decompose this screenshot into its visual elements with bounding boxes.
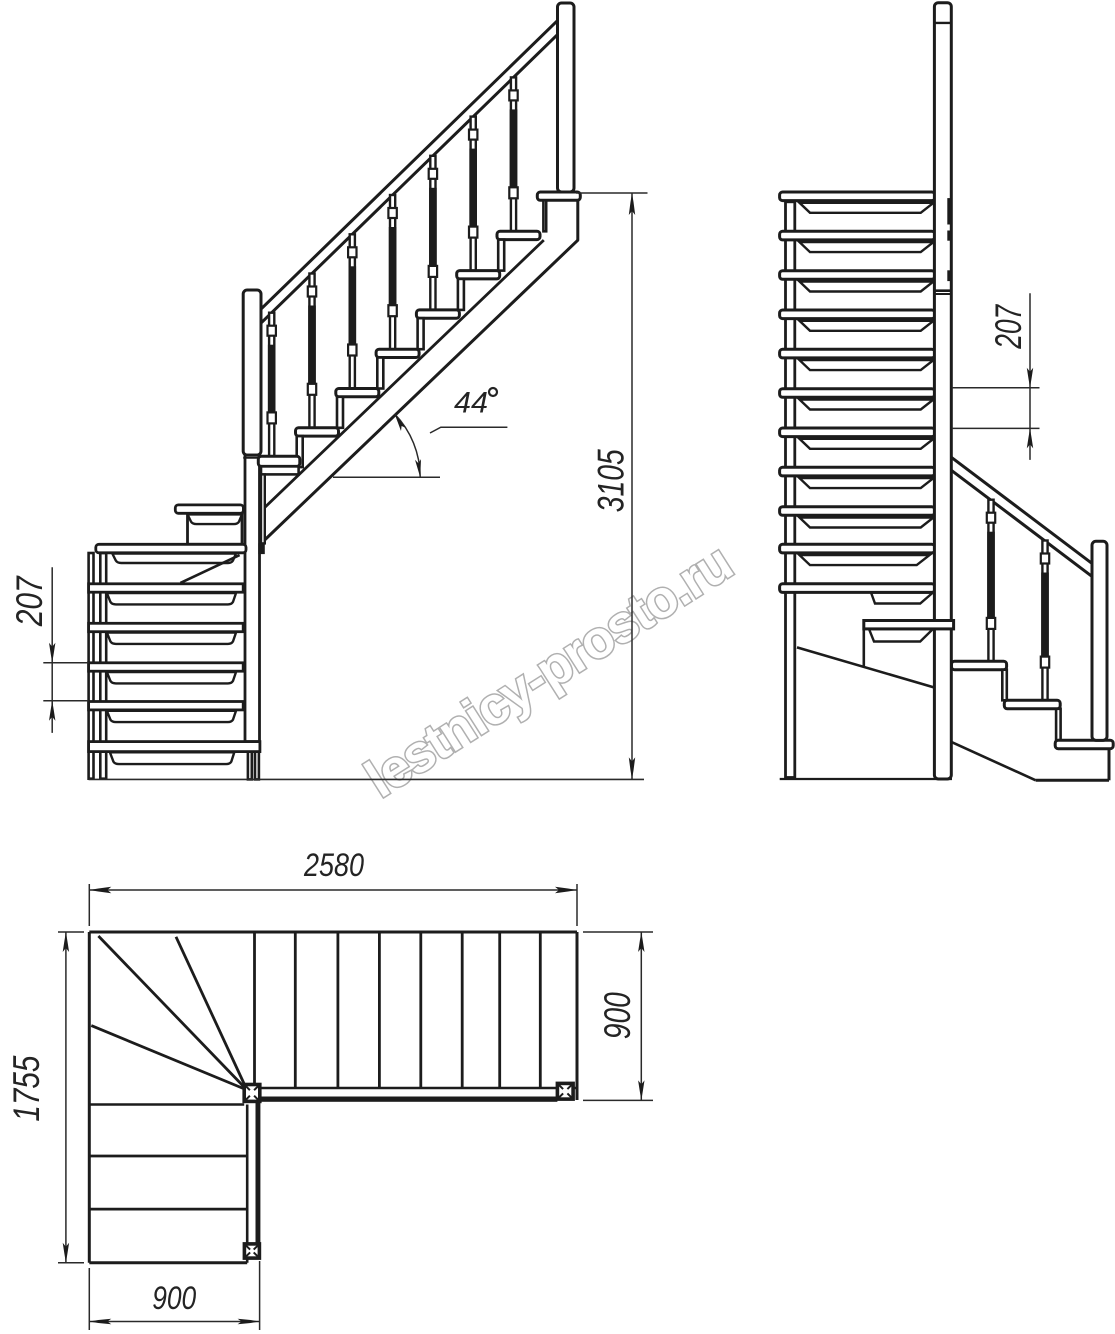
svg-text:44: 44: [454, 387, 488, 420]
svg-text:900: 900: [152, 1280, 196, 1316]
svg-text:900: 900: [597, 992, 638, 1039]
svg-text:3105: 3105: [591, 449, 632, 512]
svg-text:207: 207: [988, 304, 1029, 350]
svg-text:2580: 2580: [303, 847, 364, 883]
svg-text:207: 207: [9, 575, 50, 627]
svg-text:1755: 1755: [6, 1055, 47, 1121]
